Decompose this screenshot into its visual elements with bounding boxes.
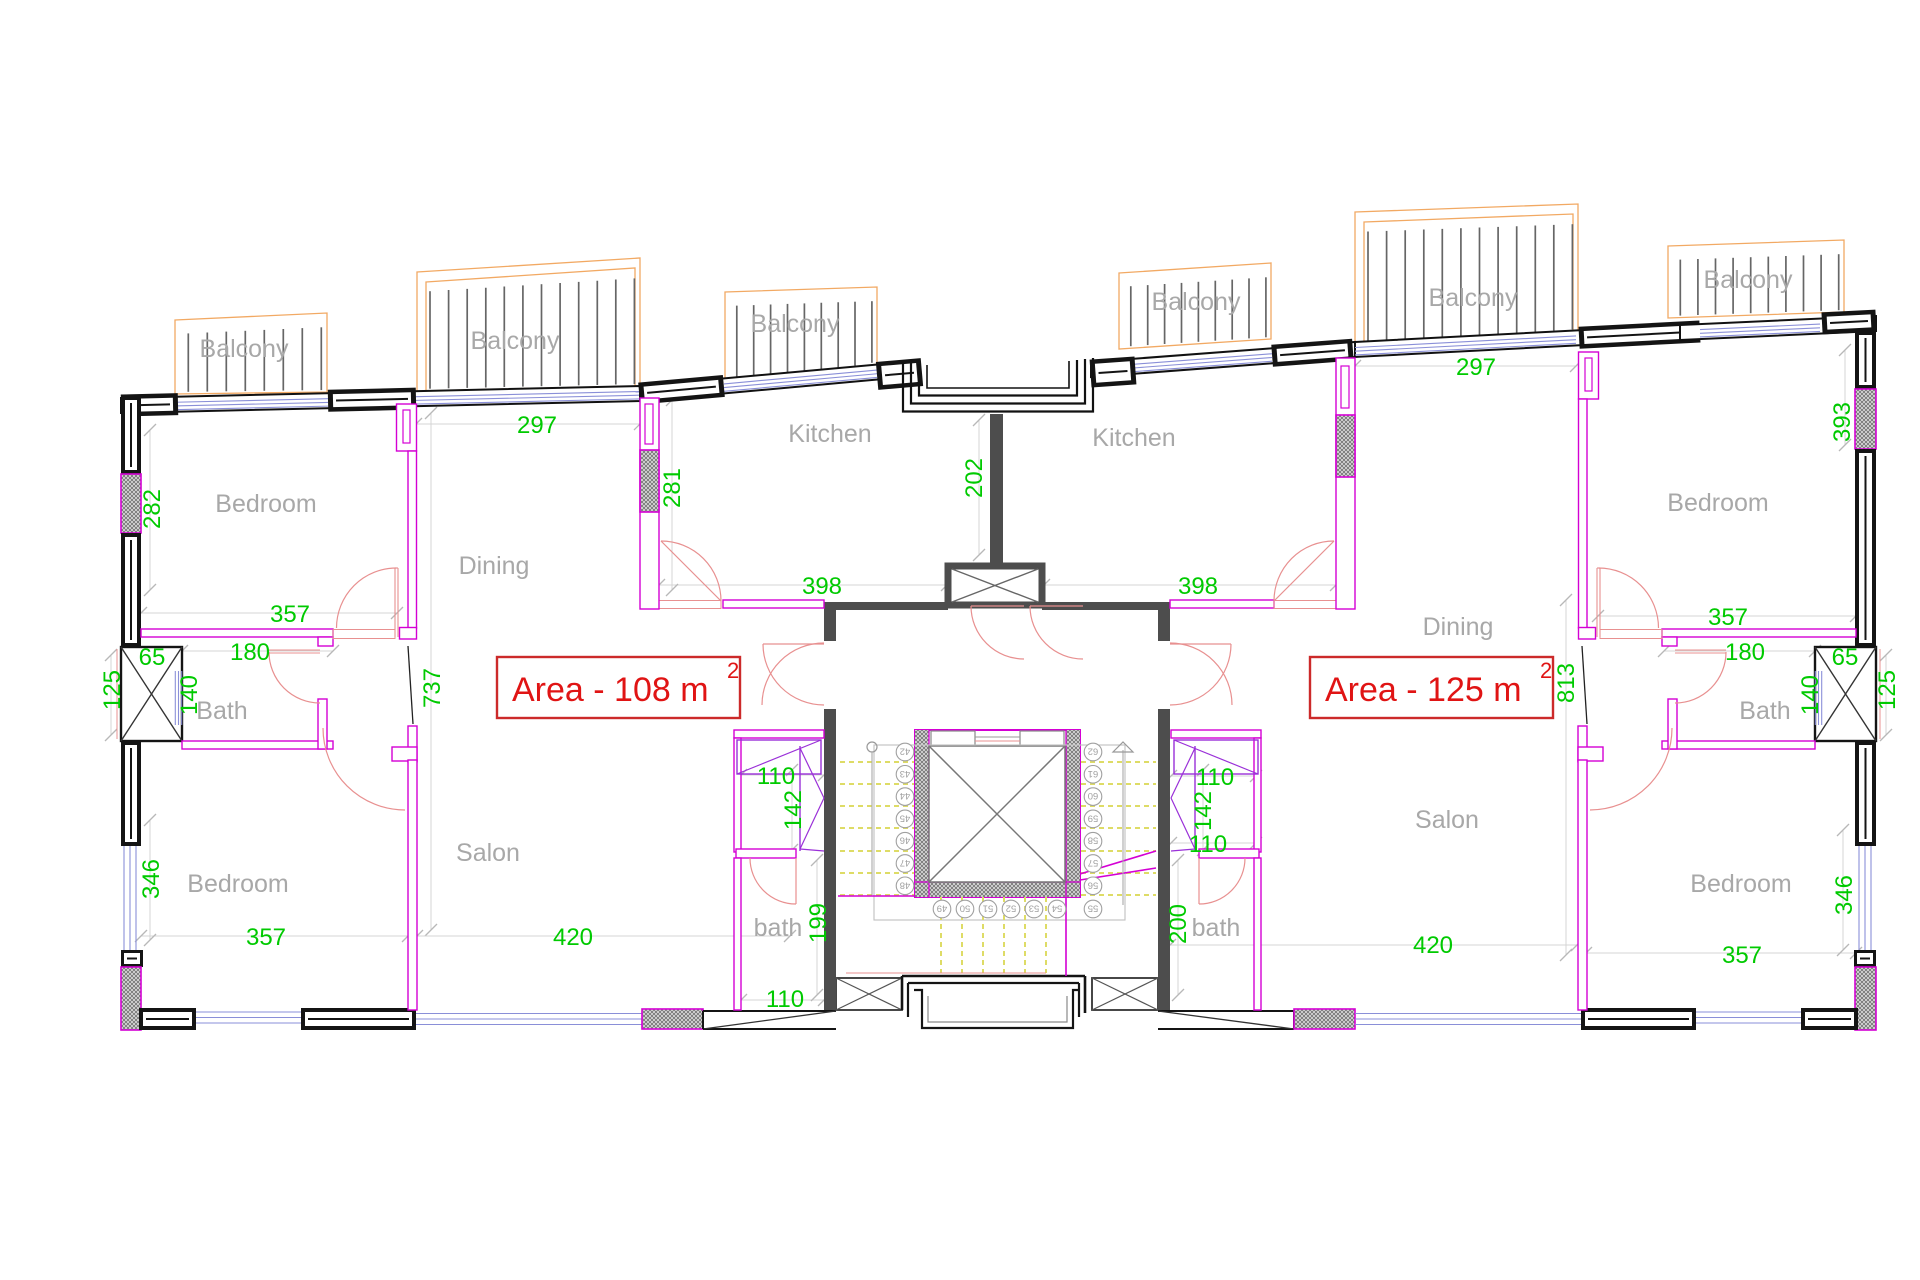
svg-text:297: 297 xyxy=(1456,354,1496,381)
svg-text:Balcony: Balcony xyxy=(1429,284,1518,312)
svg-text:42: 42 xyxy=(900,746,911,757)
svg-text:58: 58 xyxy=(1088,835,1099,846)
svg-text:357: 357 xyxy=(246,924,286,951)
svg-text:393: 393 xyxy=(1829,402,1856,442)
svg-text:Dining: Dining xyxy=(1423,613,1494,641)
svg-text:62: 62 xyxy=(1088,746,1099,757)
svg-text:180: 180 xyxy=(230,639,270,666)
svg-text:Kitchen: Kitchen xyxy=(1092,424,1175,452)
svg-text:59: 59 xyxy=(1088,812,1099,823)
svg-text:46: 46 xyxy=(900,835,911,846)
svg-text:65: 65 xyxy=(1832,644,1859,671)
svg-text:Bedroom: Bedroom xyxy=(1667,489,1768,517)
svg-text:110: 110 xyxy=(766,986,804,1013)
svg-text:Dining: Dining xyxy=(459,552,530,580)
svg-text:357: 357 xyxy=(1722,942,1762,969)
svg-text:Balcony: Balcony xyxy=(751,310,840,338)
svg-text:43: 43 xyxy=(900,768,911,779)
svg-text:49: 49 xyxy=(937,903,948,914)
svg-text:357: 357 xyxy=(1708,604,1748,631)
svg-text:55: 55 xyxy=(1088,903,1099,914)
svg-text:53: 53 xyxy=(1029,903,1040,914)
svg-text:51: 51 xyxy=(983,903,994,914)
svg-text:125: 125 xyxy=(99,670,126,710)
svg-text:61: 61 xyxy=(1088,768,1099,779)
svg-text:bath: bath xyxy=(754,914,803,942)
svg-text:47: 47 xyxy=(900,857,911,868)
svg-text:420: 420 xyxy=(553,924,593,951)
svg-text:398: 398 xyxy=(1178,573,1218,600)
svg-text:Bedroom: Bedroom xyxy=(187,870,288,898)
svg-text:56: 56 xyxy=(1088,879,1099,890)
svg-text:Balcony: Balcony xyxy=(1152,288,1241,316)
svg-text:140: 140 xyxy=(176,675,203,715)
svg-text:45: 45 xyxy=(900,812,911,823)
svg-text:199: 199 xyxy=(805,903,832,943)
svg-text:297: 297 xyxy=(517,412,557,439)
svg-text:2: 2 xyxy=(727,658,739,683)
svg-text:737: 737 xyxy=(419,668,446,708)
svg-text:142: 142 xyxy=(780,790,807,830)
svg-text:282: 282 xyxy=(139,489,166,529)
svg-text:Kitchen: Kitchen xyxy=(788,420,871,448)
svg-text:Bath: Bath xyxy=(1739,697,1790,725)
svg-text:420: 420 xyxy=(1413,932,1453,959)
svg-text:57: 57 xyxy=(1088,857,1099,868)
svg-text:Balcony: Balcony xyxy=(1704,266,1793,294)
svg-text:48: 48 xyxy=(900,879,911,890)
svg-text:346: 346 xyxy=(138,859,165,899)
svg-text:202: 202 xyxy=(961,458,988,498)
svg-text:Salon: Salon xyxy=(456,839,520,867)
svg-text:Salon: Salon xyxy=(1415,806,1479,834)
svg-text:65: 65 xyxy=(139,644,166,671)
svg-text:200: 200 xyxy=(1165,904,1192,944)
svg-text:Area - 108 m: Area - 108 m xyxy=(512,671,709,709)
svg-text:Balcony: Balcony xyxy=(200,335,289,363)
svg-text:bath: bath xyxy=(1192,914,1241,942)
svg-text:Bedroom: Bedroom xyxy=(215,490,316,518)
svg-text:110: 110 xyxy=(757,763,795,790)
svg-text:44: 44 xyxy=(900,790,911,801)
svg-text:2: 2 xyxy=(1540,658,1552,683)
svg-text:52: 52 xyxy=(1006,903,1017,914)
svg-text:180: 180 xyxy=(1725,639,1765,666)
svg-text:125: 125 xyxy=(1874,670,1901,710)
svg-text:140: 140 xyxy=(1797,675,1824,715)
svg-text:60: 60 xyxy=(1088,790,1099,801)
svg-text:54: 54 xyxy=(1052,903,1063,914)
svg-text:Bath: Bath xyxy=(196,697,247,725)
svg-text:142: 142 xyxy=(1190,791,1217,831)
svg-text:346: 346 xyxy=(1831,875,1858,915)
svg-text:398: 398 xyxy=(802,573,842,600)
svg-text:281: 281 xyxy=(659,468,686,508)
svg-text:357: 357 xyxy=(270,601,310,628)
svg-text:Balcony: Balcony xyxy=(471,327,560,355)
svg-text:813: 813 xyxy=(1553,663,1580,703)
svg-text:110: 110 xyxy=(1196,764,1234,791)
svg-text:Area - 125 m: Area - 125 m xyxy=(1325,671,1522,709)
svg-text:Bedroom: Bedroom xyxy=(1690,870,1791,898)
svg-text:110: 110 xyxy=(1189,831,1227,858)
svg-text:50: 50 xyxy=(960,903,971,914)
